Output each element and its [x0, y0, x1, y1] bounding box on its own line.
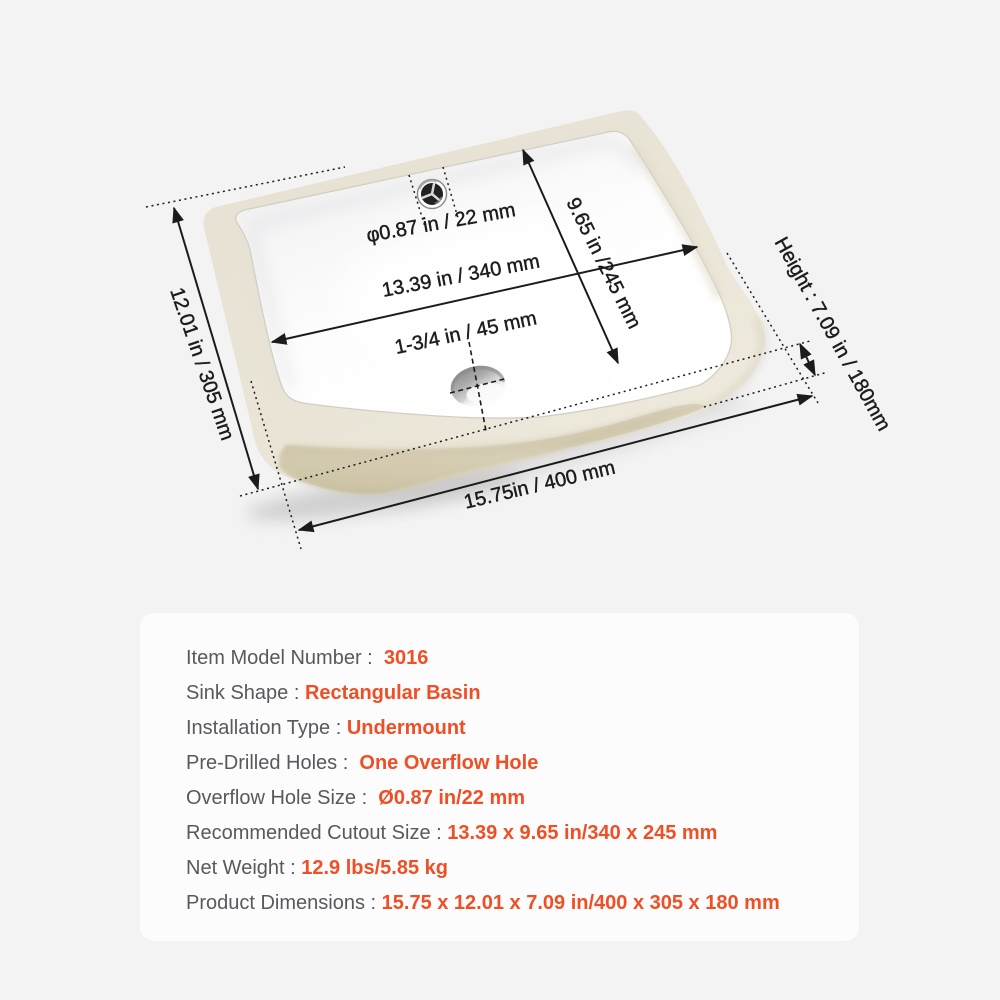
svg-text:Height : 7.09 in / 180mm: Height : 7.09 in / 180mm — [770, 233, 895, 434]
